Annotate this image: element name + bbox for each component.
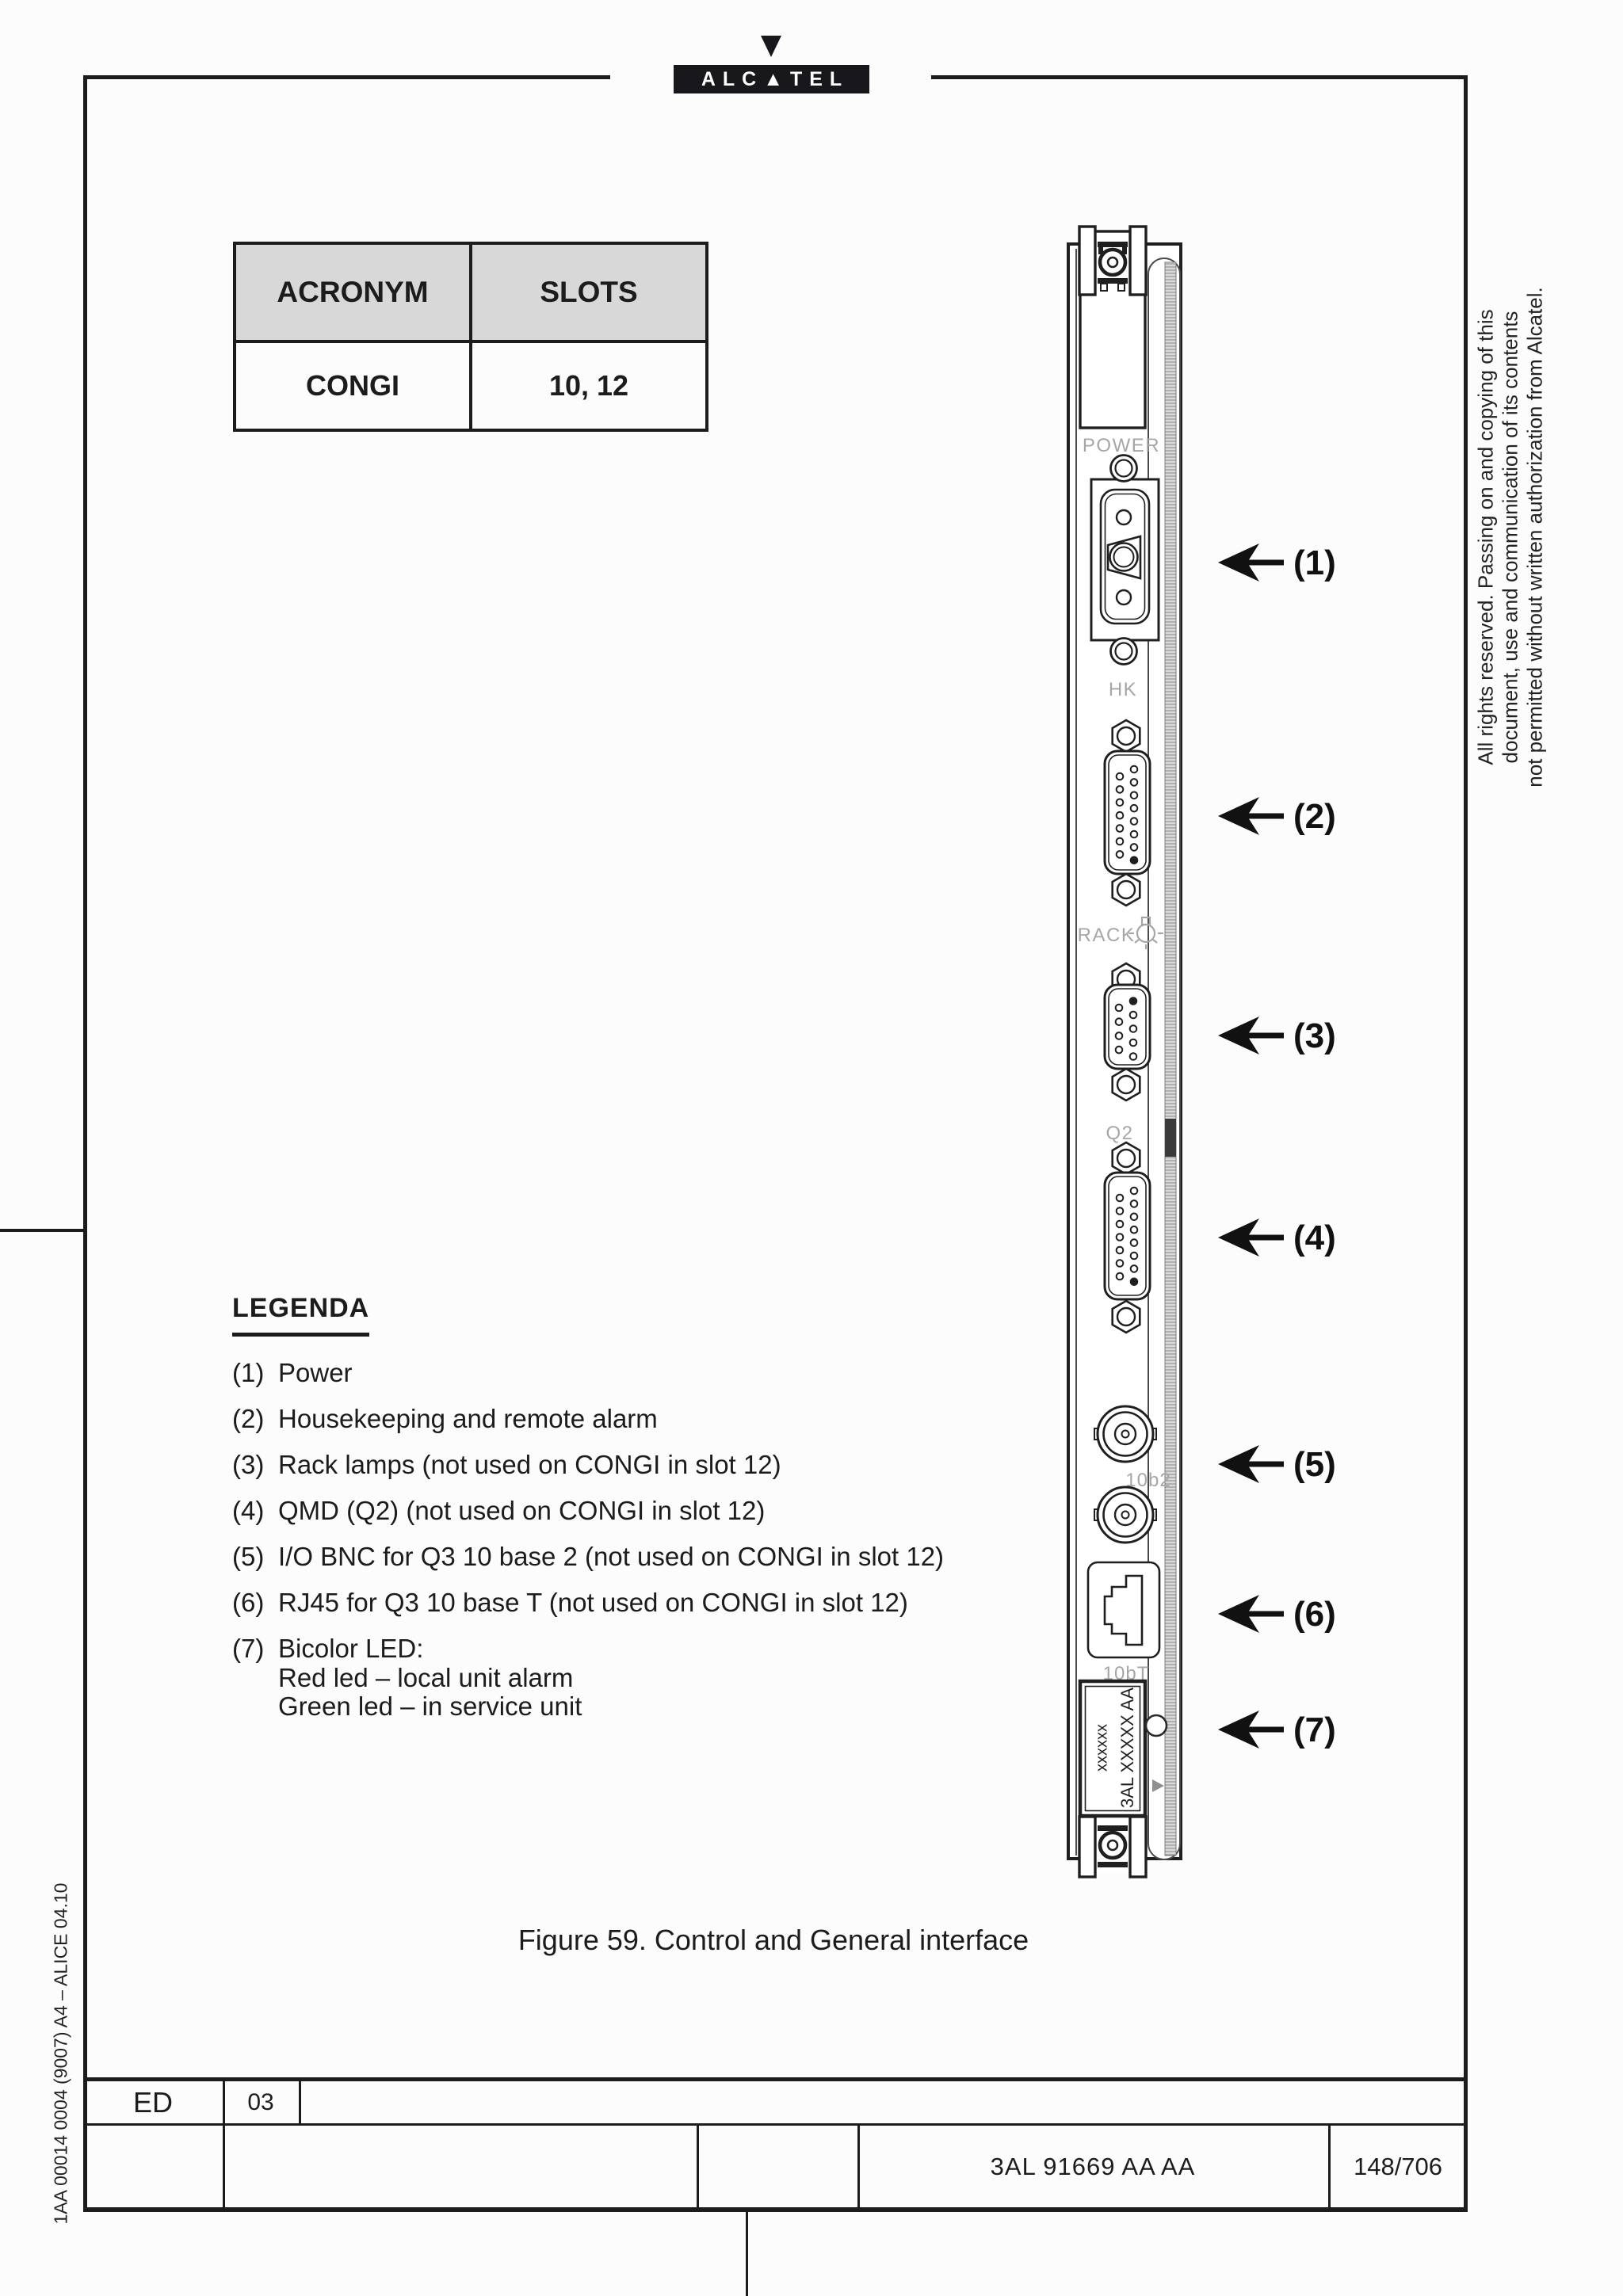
callout-4: (4) [1218,1219,1336,1257]
fold-mark [0,1229,83,1232]
rack-label: RACK [1078,925,1136,946]
callout-5-label: (5) [1293,1445,1336,1484]
acronym-header-cell: ACRONYM [235,243,471,341]
logo-wordmark: ALC▲TEL [694,68,849,91]
frame-top-right [931,75,1468,79]
rights-line-2: document, use and communication of its c… [1499,287,1523,788]
slots-header-cell: SLOTS [471,243,707,341]
frame-left [83,75,87,2212]
callout-6: (6) [1218,1595,1336,1634]
callout-5: (5) [1218,1445,1336,1484]
legend-item-3: (3) Rack lamps (not used on CONGI in slo… [232,1450,1183,1480]
hatch-dark-segment [1165,1119,1176,1157]
callout-6-label: (6) [1293,1595,1336,1634]
power-connector [1091,456,1159,665]
top-latch [1079,227,1146,428]
footer-div-03 [299,2081,301,2123]
legend-item-num: (1) [232,1358,278,1388]
legend-item-text: Power [278,1358,353,1388]
callout-2: (2) [1218,797,1336,836]
legend-item-6: (6) RJ45 for Q3 10 base T (not used on C… [232,1588,1183,1618]
document-page: ALC▲TEL ACRONYM SLOTS CONGI 10, 12 All r… [0,0,1623,2296]
slots-value-cell: 10, 12 [471,341,707,430]
legend-item-num: (2) [232,1404,278,1434]
rights-line-1: All rights reserved. Passing on and copy… [1474,287,1499,788]
bottom-center-mark [746,2212,748,2296]
bottom-latch [1079,1817,1146,1877]
q2-label: Q2 [1106,1123,1133,1144]
callout-4-label: (4) [1293,1219,1336,1257]
figure-caption: Figure 59. Control and General interface [83,1924,1464,1957]
callout-3: (3) [1218,1016,1336,1055]
acronym-value-cell: CONGI [235,341,471,430]
footer-ed-value: 03 [223,2081,299,2123]
legend-item-text: Housekeeping and remote alarm [278,1404,658,1434]
unit-code-small: xxxxxx [1093,1724,1110,1772]
alcatel-logo: ALC▲TEL [674,65,869,93]
footer-page-ref: 148/706 [1328,2126,1468,2207]
power-label: POWER [1083,435,1160,456]
legend-item-7-green: Green led – in service unit [278,1692,582,1721]
legend-item-4: (4) QMD (Q2) (not used on CONGI in slot … [232,1496,1183,1526]
frame-top-left [83,75,610,79]
legend-item-text: I/O BNC for Q3 10 base 2 (not used on CO… [278,1542,944,1572]
legend-item-num: (5) [232,1542,278,1572]
frame-bottom [83,2207,1468,2212]
callout-2-label: (2) [1293,797,1336,836]
legend-section: LEGENDA (1) Power (2) Housekeeping and r… [232,1293,1183,1721]
hk-label: HK [1109,679,1137,700]
callout-1: (1) [1218,543,1336,582]
callout-3-label: (3) [1293,1016,1336,1055]
footer-doc-code: 3AL 91669 AA AA [857,2126,1328,2207]
legend-title: LEGENDA [232,1293,369,1337]
legend-item-text: Rack lamps (not used on CONGI in slot 12… [278,1450,781,1480]
legend-item-num: (3) [232,1450,278,1480]
legend-item-7: (7) Bicolor LED: Red led – local unit al… [232,1634,1183,1721]
rights-line-3: not permitted without written authorizat… [1523,287,1548,788]
logo-triangle-icon [761,36,781,57]
legend-item-text: Bicolor LED: [278,1634,423,1663]
legend-item-num: (6) [232,1588,278,1618]
callout-1-label: (1) [1293,543,1336,582]
footer-ed-label: ED [83,2081,223,2123]
legend-item-num: (4) [232,1496,278,1526]
legend-item-2: (2) Housekeeping and remote alarm [232,1404,1183,1434]
footer-div-r2b [697,2126,699,2207]
legend-item-1: (1) Power [232,1358,1183,1388]
callout-7: (7) [1218,1711,1336,1749]
callout-7-label: (7) [1293,1711,1336,1749]
legend-item-text: RJ45 for Q3 10 base T (not used on CONGI… [278,1588,908,1618]
frame-right [1464,75,1468,2212]
legend-item-text: QMD (Q2) (not used on CONGI in slot 12) [278,1496,765,1526]
legend-item-num: (7) [232,1634,278,1721]
legend-item-7-red: Red led – local unit alarm [278,1664,582,1692]
callout-arrows: (1) (2) (3) (4) (5) (6) (7) [1218,543,1336,1749]
footer-div-r2a [223,2126,225,2207]
form-code-text: 1AA 00014 0004 (9007) A4 – ALICE 04.10 [51,1883,72,2225]
legend-item-5: (5) I/O BNC for Q3 10 base 2 (not used o… [232,1542,1183,1572]
acronym-slots-table: ACRONYM SLOTS CONGI 10, 12 [233,242,708,432]
